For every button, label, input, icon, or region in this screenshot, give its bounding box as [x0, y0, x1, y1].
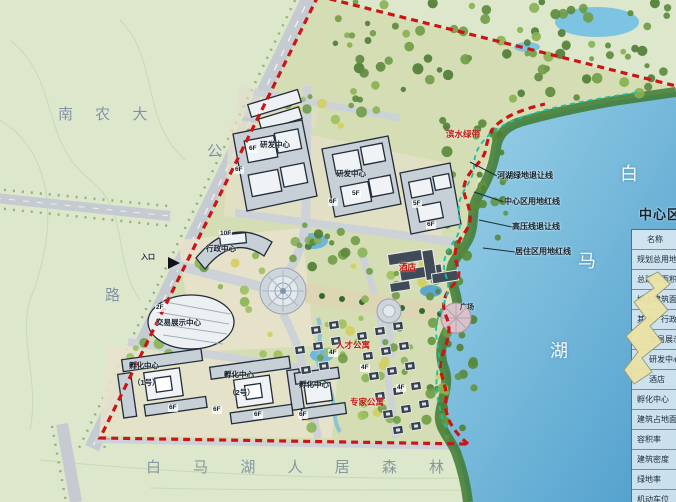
label-waterfront: 滨水绿带	[446, 128, 480, 140]
label-incubator-1: 孵化中心	[129, 360, 159, 371]
floor-count-tag: 4F	[396, 384, 406, 392]
label-nongda: 南 农 大	[58, 103, 156, 124]
floor-count-tag: 6F	[253, 411, 263, 419]
label-lake-ma: 马	[578, 247, 596, 273]
label-hotel: 酒店	[399, 261, 416, 273]
map-label-layer: 南 农 大公路白 马 湖 人 居 森 林白马湖河湖绿地退让线中心区用地红线高压线…	[0, 0, 676, 502]
label-lake-hu: 湖	[550, 337, 568, 363]
label-incubator-2: 孵化中心	[224, 369, 254, 380]
floor-count-tag: 10F	[219, 230, 232, 238]
floor-count-tag: 5F	[412, 200, 422, 208]
floor-count-tag: 6F	[234, 166, 244, 174]
floor-count-tag: 2F	[155, 304, 165, 312]
label-rd-center-2: 研发中心	[336, 168, 366, 179]
label-setback-voltage: 高压线退让线	[512, 221, 560, 232]
floor-count-tag: 6F	[298, 411, 308, 419]
label-admin-center: 行政中心	[206, 243, 236, 254]
label-expo-center: 交易展示中心	[156, 317, 201, 328]
label-incubator-3: 孵化中心	[299, 379, 329, 390]
label-plaza: 广场	[460, 302, 474, 312]
label-setback-river: 河湖绿地退让线	[497, 170, 553, 181]
floor-count-tag: 4F	[360, 364, 370, 372]
label-road-gong: 公	[207, 140, 231, 161]
label-apartment-2: 专家公寓	[350, 396, 384, 408]
floor-count-tag: 6F	[426, 221, 436, 229]
label-incubator-1-no: （1号）	[133, 377, 160, 388]
label-redline-center: 中心区用地红线	[504, 196, 560, 207]
label-entrance: 入口	[141, 252, 155, 262]
floor-count-tag: 6F	[248, 145, 258, 153]
label-incubator-2-no: （2号）	[228, 387, 255, 398]
master-plan-screenshot: 中心区经济技术指标 名称规划总用地总建筑面积地上建筑面积其中：行政中心交易展示中…	[0, 0, 676, 502]
label-forest: 白 马 湖 人 居 森 林	[146, 456, 458, 477]
label-redline-resi: 居住区用地红线	[515, 246, 571, 257]
floor-count-tag: 5F	[351, 190, 361, 198]
floor-count-tag: 6F	[328, 198, 338, 206]
label-lake-bai: 白	[620, 160, 638, 186]
floor-count-tag: 6F	[212, 406, 222, 414]
floor-count-tag: 6F	[168, 404, 178, 412]
label-road-lu: 路	[105, 284, 129, 305]
floor-count-tag: 4F	[328, 349, 338, 357]
label-apartment-1: 人才公寓	[336, 339, 370, 351]
label-rd-center-1: 研发中心	[260, 139, 290, 150]
